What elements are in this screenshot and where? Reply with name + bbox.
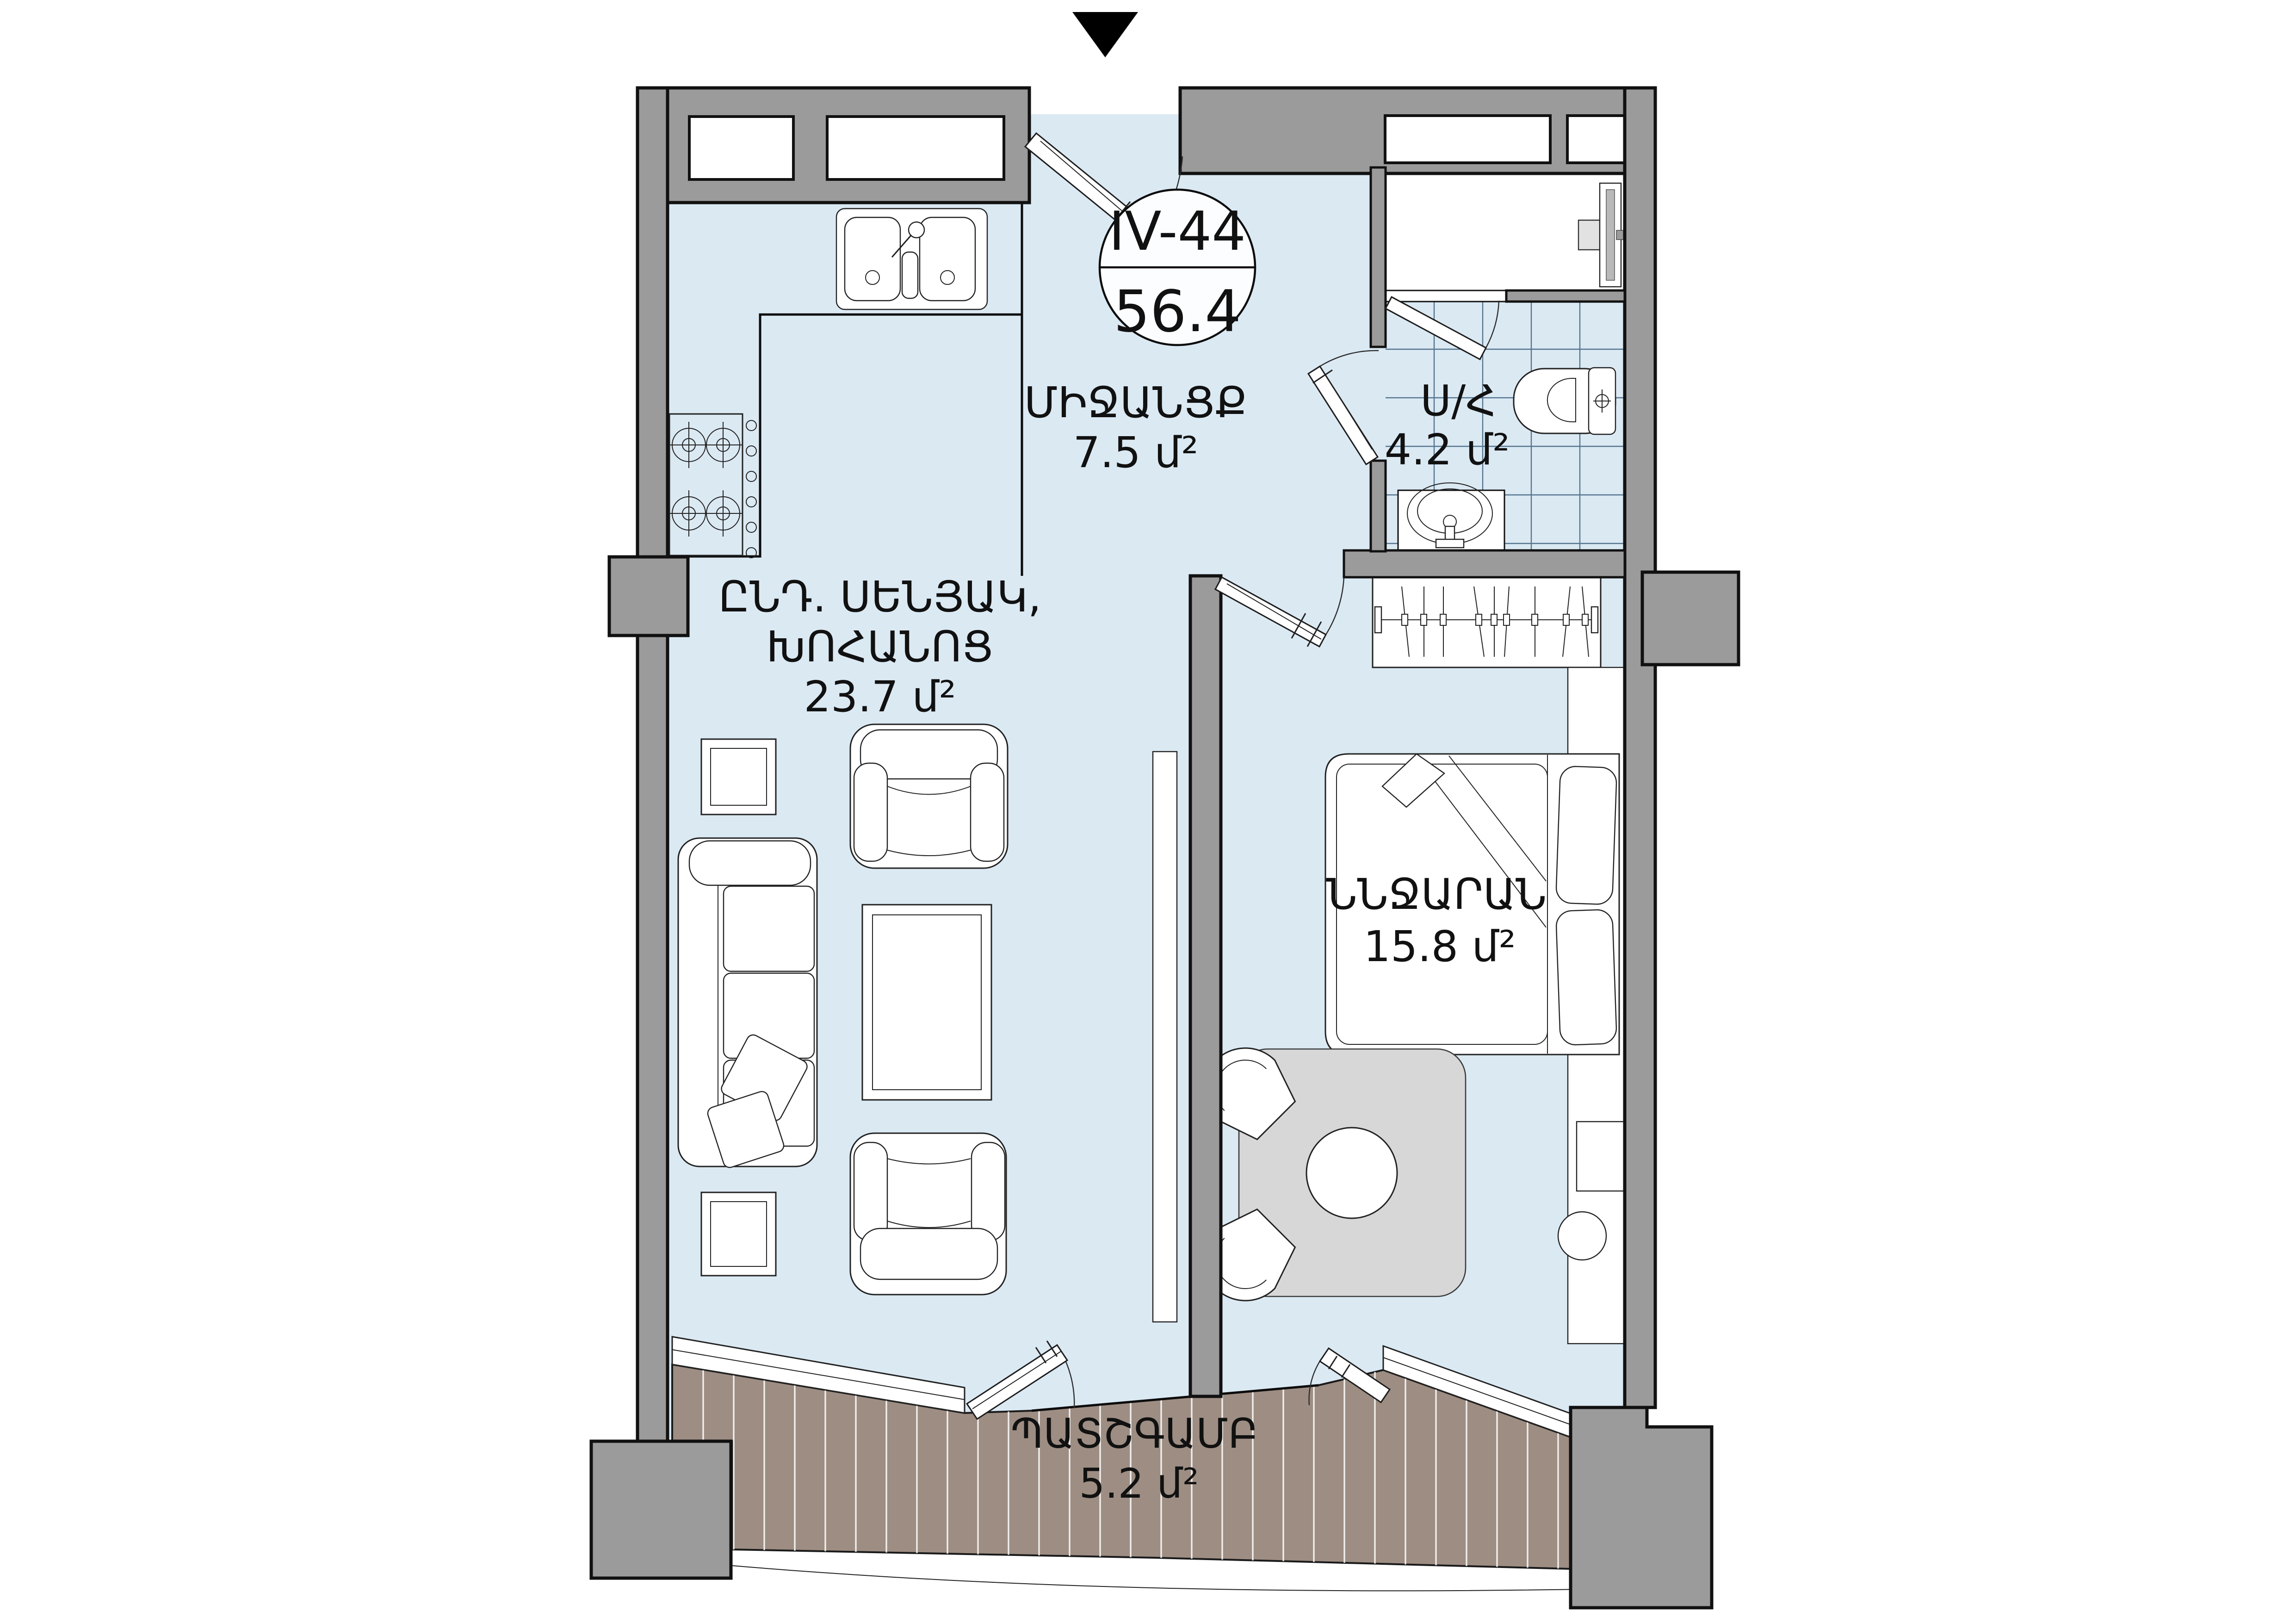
wall-left (637, 88, 668, 1441)
living-label-line1: ԸՆԴ. ՍԵՆՅԱԿ, (718, 572, 1041, 622)
sofa (678, 838, 817, 1169)
window (689, 117, 793, 179)
wall-bathroom-left-lower (1371, 461, 1386, 551)
bedside-desk (1577, 1122, 1625, 1191)
pillow (1556, 766, 1617, 905)
floor-plan-page: IV-44 56.4 ՄԻՋԱՆՑՔ 7.5 մ² Ս/Հ 4.2 մ² ԸՆԴ… (0, 0, 2296, 1623)
pillar-bottom-right (1571, 1407, 1712, 1608)
window (1385, 116, 1550, 163)
balcony-label: ՊԱՏՇԳԱՄԲ (1011, 1410, 1258, 1457)
unit-badge: IV-44 56.4 (1100, 190, 1255, 345)
wall-bedroom-top (1344, 550, 1625, 577)
unit-code: IV-44 (1109, 200, 1246, 263)
living-label-line2: ԽՈՀԱՆՈՑ (766, 622, 993, 672)
floor-plan-canvas: IV-44 56.4 ՄԻՋԱՆՑՔ 7.5 մ² Ս/Հ 4.2 մ² ԸՆԴ… (0, 0, 2296, 1623)
wall-right (1625, 88, 1655, 1407)
utility-threshold (1386, 290, 1506, 302)
living-area: 23.7 մ² (804, 672, 956, 722)
pillar-left (609, 557, 688, 636)
bathroom-area: 4.2 մ² (1385, 425, 1510, 475)
toilet (1514, 368, 1615, 434)
wardrobe (1373, 575, 1601, 667)
side-table-top (701, 739, 776, 815)
wall-utility-divider (1506, 290, 1625, 302)
bedroom-area: 15.8 մ² (1363, 922, 1516, 971)
utility-room (1386, 173, 1625, 302)
window (827, 117, 1004, 179)
bedroom-label: ՆՆՋԱՐԱՆ (1326, 870, 1547, 919)
bathroom-sink (1398, 483, 1504, 550)
wall-living-bedroom-divider (1190, 576, 1221, 1396)
entrance-arrow-icon (1072, 12, 1138, 57)
coffee-table (862, 905, 991, 1100)
side-table-bottom (701, 1192, 776, 1276)
window (1567, 116, 1625, 163)
armchair-top (850, 724, 1008, 868)
balcony-area: 5.2 մ² (1079, 1460, 1199, 1507)
pillar-right (1642, 572, 1739, 665)
hallway-area: 7.5 մ² (1073, 428, 1199, 477)
bathroom-label: Ս/Հ (1420, 376, 1496, 426)
unit-total-area: 56.4 (1114, 278, 1241, 345)
kitchen-sink (836, 209, 987, 309)
tv-console (1153, 752, 1177, 1322)
pillar-bottom-left (591, 1441, 731, 1578)
armchair-bottom (850, 1133, 1006, 1295)
wall-bathroom-left-upper (1371, 167, 1386, 347)
stool (1558, 1212, 1606, 1260)
hallway-label: ՄԻՋԱՆՑՔ (1024, 378, 1248, 427)
round-table (1306, 1128, 1397, 1218)
pillow (1556, 909, 1617, 1045)
